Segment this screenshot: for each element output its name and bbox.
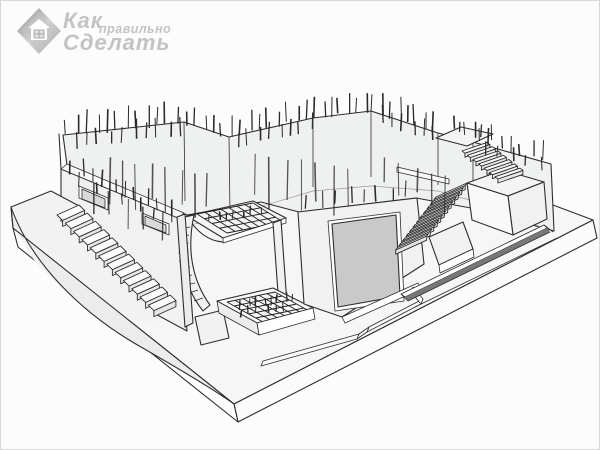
watermark-word-bottom: Сделать bbox=[63, 30, 171, 56]
watermark: Как правильно Сделать bbox=[13, 5, 223, 63]
garage-door bbox=[332, 215, 400, 307]
house-diamond-icon bbox=[15, 6, 63, 56]
image-frame: Как правильно Сделать bbox=[0, 0, 600, 450]
left-corner-edge bbox=[59, 134, 61, 169]
construction-scene bbox=[1, 1, 600, 450]
